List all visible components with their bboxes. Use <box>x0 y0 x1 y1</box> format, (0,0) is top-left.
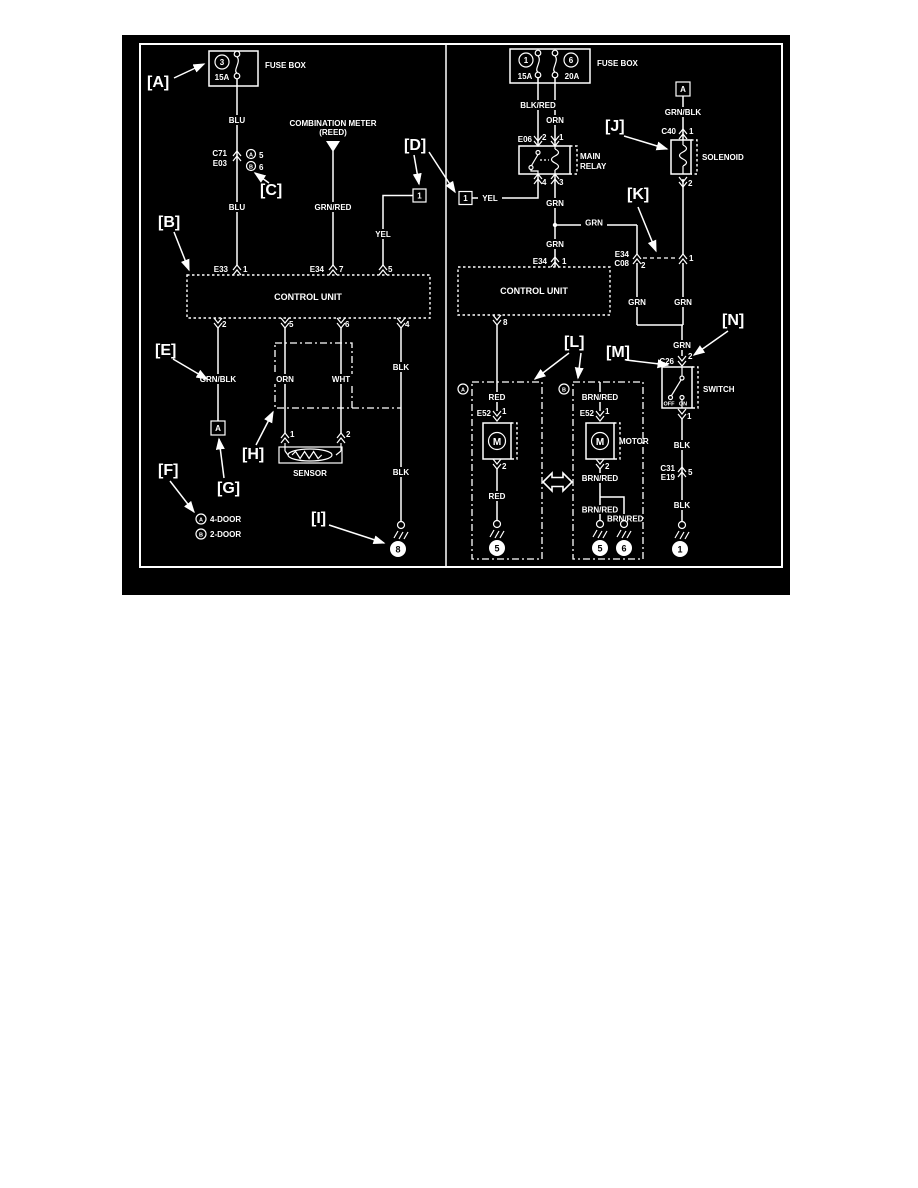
tag-n: [N] <box>722 312 744 329</box>
e03-label: E03 <box>213 159 228 168</box>
wire-label-brnred3: BRN/RED <box>582 506 619 515</box>
fuse-box-right-label: FUSE BOX <box>597 59 639 68</box>
ground-icon-left <box>394 522 408 540</box>
tag-j: [J] <box>605 118 625 135</box>
connector-box-a-right: A <box>676 82 690 96</box>
legend-a-text: 4-DOOR <box>210 515 241 524</box>
cu-right-bottom-pin: 8 <box>503 318 508 327</box>
tag-i-arrow <box>329 525 384 543</box>
tag-l-arrow2 <box>578 353 581 378</box>
pin-e34-num: 7 <box>339 265 344 274</box>
connector-c71-e03: C71 E03 A 5 B 6 <box>212 149 264 172</box>
wire-label-grn3: GRN <box>546 240 564 249</box>
motor-a: M <box>483 423 517 459</box>
main-relay: E06 2 1 MAIN RELAY 4 3 <box>518 133 607 187</box>
wire-label-grnred: GRN/RED <box>315 203 352 212</box>
motor-b: M MOTOR <box>586 423 649 459</box>
tag-f: [F] <box>158 462 178 479</box>
wire-label-brnred1: BRN/RED <box>582 393 619 402</box>
tag-g: [G] <box>217 480 240 497</box>
ground-icon-switch <box>675 522 689 540</box>
motor-b-m: M <box>596 437 604 448</box>
e34-c08-label2: C08 <box>614 259 629 268</box>
tag-e-arrow <box>173 359 207 379</box>
relay-pin-1: 1 <box>559 133 564 142</box>
c31-label: C31 <box>660 464 675 473</box>
wire-label-grnblk: GRN/BLK <box>200 375 237 384</box>
control-unit-right-label: CONTROL UNIT <box>500 286 568 296</box>
c26-pin: 2 <box>688 352 693 361</box>
wire-label-grn4: GRN <box>628 298 646 307</box>
ground-id-left-num: 8 <box>395 545 400 555</box>
fuse-number: 3 <box>220 58 225 67</box>
wire-label-blk2-right: BLK <box>674 501 691 510</box>
legend-a-circle: A <box>199 518 203 524</box>
motor-b-label: MOTOR <box>619 437 649 446</box>
c31-pin: 5 <box>688 468 693 477</box>
pin-5: 5 <box>388 265 393 274</box>
fuse6-rating: 20A <box>565 72 580 81</box>
wire-label-grn1: GRN <box>546 199 564 208</box>
opt-b-circle: B <box>249 165 253 171</box>
switch-on-label: ON <box>679 402 687 408</box>
tag-f-arrow <box>170 481 194 512</box>
c40-pin: 1 <box>689 127 694 136</box>
sensor: 1 2 SENSOR <box>279 430 351 478</box>
wire-label-blk-lower: BLK <box>393 468 410 477</box>
pin-e33: E33 <box>214 265 229 274</box>
inline-connector-1-right-label: 1 <box>463 194 468 203</box>
opt-b-pin: 6 <box>259 163 264 172</box>
tag-g-arrow <box>219 439 224 478</box>
wire-label-grn2: GRN <box>585 219 603 228</box>
meter-label-2: (REED) <box>319 128 347 137</box>
meter-triangle-icon <box>326 141 340 152</box>
solenoid-pin2: 2 <box>688 179 693 188</box>
inline-connector-1-left: 1 <box>413 189 426 202</box>
e34-c08-label1: E34 <box>615 250 630 259</box>
sensor-label: SENSOR <box>293 469 327 478</box>
relay-pin-3: 3 <box>559 178 564 187</box>
inline-connector-1-left-label: 1 <box>417 192 422 201</box>
tag-m: [M] <box>606 344 630 361</box>
cu-pin-5: 5 <box>289 320 294 329</box>
wire-label-brnred2: BRN/RED <box>582 474 619 483</box>
wire-label-blu-lower: BLU <box>229 203 246 212</box>
opt-a-pin: 5 <box>259 151 264 160</box>
either-or-arrow-icon <box>543 473 572 491</box>
wire-label-red1: RED <box>489 393 506 402</box>
relay-label-2: RELAY <box>580 162 607 171</box>
tag-l: [L] <box>564 334 584 351</box>
combination-meter: COMBINATION METER (REED) <box>290 119 377 152</box>
wire-label-orn: ORN <box>276 375 294 384</box>
e19-label: E19 <box>661 473 676 482</box>
ground-icon-motor-b1 <box>593 521 607 539</box>
cu-pin-6: 6 <box>345 320 350 329</box>
motor-b-pin2: 2 <box>605 462 610 471</box>
right-fuse-box: 1 15A 6 20A FUSE BOX <box>510 49 639 83</box>
tag-h-arrow <box>256 412 273 445</box>
inline-connector-1-right: 1 <box>459 192 472 205</box>
cu-pin-4: 4 <box>405 320 410 329</box>
tag-e: [E] <box>155 342 176 359</box>
c40-label: C40 <box>661 127 676 136</box>
ground-id-switch-num: 1 <box>677 545 682 555</box>
tag-l-arrow1 <box>535 353 569 379</box>
legend: A 4-DOOR B 2-DOOR <box>196 514 241 539</box>
pin-e34: E34 <box>310 265 325 274</box>
legend-b-text: 2-DOOR <box>210 530 241 539</box>
tag-b: [B] <box>158 214 180 231</box>
wiring-diagram: 3 15A FUSE BOX [A] BLU C71 E03 A 5 B 6 [… <box>122 35 790 595</box>
wire-label-grnblk-right: GRN/BLK <box>665 108 702 117</box>
pin-e33-num: 1 <box>243 265 248 274</box>
wire-label-wht: WHT <box>332 375 350 384</box>
fuse1-number: 1 <box>524 56 529 65</box>
ground-id-motor-a-num: 5 <box>494 544 499 554</box>
tag-k-arrow <box>638 207 656 251</box>
motor-b-e52: E52 <box>580 409 595 418</box>
fuse6-number: 6 <box>569 56 574 65</box>
tag-a-arrow <box>174 64 204 78</box>
cu-pin-2: 2 <box>222 320 227 329</box>
legend-b-circle: B <box>199 533 203 539</box>
control-unit-left-label: CONTROL UNIT <box>274 292 342 302</box>
fuse1-rating: 15A <box>518 72 533 81</box>
wire-label-yel-left: YEL <box>375 230 391 239</box>
wire-label-blk-upper: BLK <box>393 363 410 372</box>
tag-c: [C] <box>260 182 282 199</box>
solenoid-label: SOLENOID <box>702 153 744 162</box>
tag-k: [K] <box>627 186 649 203</box>
sensor-pin-2: 2 <box>346 430 351 439</box>
meter-label-1: COMBINATION METER <box>290 119 377 128</box>
relay-label-1: MAIN <box>580 152 601 161</box>
tag-d-arrow1 <box>414 155 419 184</box>
c71-label: C71 <box>212 149 227 158</box>
wire-label-blkred: BLK/RED <box>520 101 556 110</box>
cu-right-conn: E34 <box>533 257 548 266</box>
switch-off-label: OFF <box>664 402 676 408</box>
relay-pin-2: 2 <box>542 133 547 142</box>
switch-label: SWITCH <box>703 385 735 394</box>
connector-box-a-left-label: A <box>215 424 221 433</box>
motor-a-pin1: 1 <box>502 407 507 416</box>
wire-label-grn6: GRN <box>673 341 691 350</box>
connector-e34-c08: E34 C08 2 1 <box>614 250 694 270</box>
sensor-pin-1: 1 <box>290 430 295 439</box>
tag-d: [D] <box>404 137 426 154</box>
motor-a-m: M <box>493 437 501 448</box>
switch: OFF ON SWITCH <box>662 367 735 408</box>
tag-a: [A] <box>147 74 169 91</box>
cu-right-pin: 1 <box>562 257 567 266</box>
motor-a-e52: E52 <box>477 409 492 418</box>
relay-conn-e06: E06 <box>518 135 533 144</box>
fuse-box-label: FUSE BOX <box>265 61 307 70</box>
motor-b-opt: B <box>562 388 566 394</box>
connector-box-a-right-label: A <box>680 85 686 94</box>
tag-d-arrow2 <box>429 152 455 192</box>
tag-i: [I] <box>311 510 326 527</box>
ground-id-motor-b2-num: 6 <box>621 544 626 554</box>
wire-label-yel-right: YEL <box>482 194 498 203</box>
solenoid: SOLENOID <box>671 140 744 174</box>
wire-label-grn5: GRN <box>674 298 692 307</box>
ground-id-motor-b1-num: 5 <box>597 544 602 554</box>
motor-a-opt: A <box>461 388 465 394</box>
opt-a-circle: A <box>249 153 253 159</box>
fuse-rating: 15A <box>215 73 230 82</box>
fuse-icon <box>234 51 240 79</box>
wire-label-blk1-right: BLK <box>674 441 691 450</box>
motor-b-pin1: 1 <box>605 407 610 416</box>
motor-a-pin2: 2 <box>502 462 507 471</box>
tag-h: [H] <box>242 446 264 463</box>
tag-j-arrow <box>624 136 667 149</box>
wire-label-blu-upper: BLU <box>229 116 246 125</box>
wire-label-orn-right: ORN <box>546 116 564 125</box>
left-fuse-box: 3 15A FUSE BOX <box>209 51 307 86</box>
tag-b-arrow <box>174 232 189 270</box>
e34-c08-pin2: 2 <box>641 261 646 270</box>
switch-pin1: 1 <box>687 412 692 421</box>
tag-n-arrow <box>694 331 728 355</box>
relay-pin-4: 4 <box>542 178 547 187</box>
wire-label-brnred4: BRN/RED <box>607 515 644 524</box>
e34-c08-pin1: 1 <box>689 254 694 263</box>
ground-icon-motor-a <box>490 521 504 539</box>
wire-label-red2: RED <box>489 492 506 501</box>
